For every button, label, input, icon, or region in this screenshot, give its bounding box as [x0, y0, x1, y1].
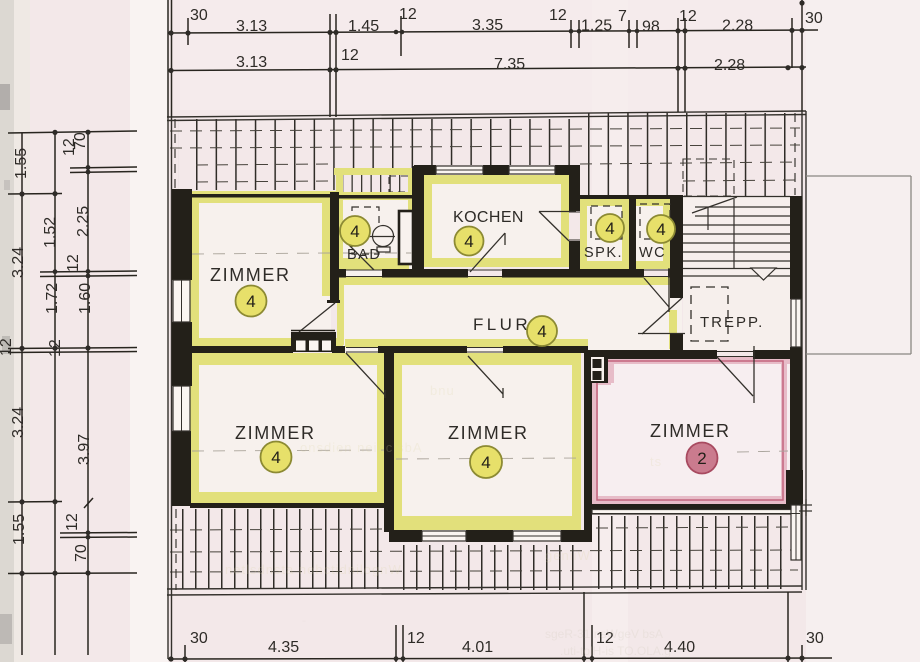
svg-text:BAD: BAD — [347, 247, 381, 263]
svg-text:30: 30 — [190, 7, 208, 24]
svg-text:4.35: 4.35 — [268, 639, 299, 656]
svg-text:1.52: 1.52 — [42, 217, 59, 248]
svg-text:TREPP.: TREPP. — [700, 314, 764, 331]
svg-text:2.28: 2.28 — [722, 18, 753, 35]
svg-text:1.72: 1.72 — [44, 283, 61, 314]
svg-text:12: 12 — [407, 630, 425, 647]
svg-text:ˍ: ˍ — [302, 609, 306, 623]
svg-text:1.60: 1.60 — [77, 283, 94, 314]
svg-text:70: 70 — [72, 132, 89, 150]
svg-text:2.28: 2.28 — [714, 57, 745, 74]
svg-text:4.01: 4.01 — [462, 639, 493, 656]
svg-text:ZIMMER: ZIMMER — [448, 423, 529, 443]
svg-text:7: 7 — [618, 8, 627, 25]
svg-text:3.13: 3.13 — [236, 54, 267, 71]
svg-text:4: 4 — [605, 219, 614, 238]
svg-text:4: 4 — [246, 292, 255, 311]
svg-text:bnu: bnu — [430, 383, 455, 398]
svg-text:ZIMMER: ZIMMER — [210, 265, 291, 285]
svg-text:4: 4 — [537, 322, 546, 341]
svg-text:3.24: 3.24 — [10, 407, 27, 438]
svg-text:4: 4 — [656, 220, 665, 239]
svg-text:SPK.: SPK. — [584, 245, 623, 261]
svg-text:3.35: 3.35 — [472, 17, 503, 34]
svg-text:3.24: 3.24 — [10, 247, 27, 278]
svg-text:ts: ts — [650, 454, 662, 469]
svg-text:.uti-tolH-is TO.OLA.g: .uti-tolH-is TO.OLA.g — [560, 644, 671, 658]
svg-text:12: 12 — [549, 7, 567, 24]
svg-text:FLUR: FLUR — [473, 315, 531, 334]
svg-text:2.25: 2.25 — [75, 206, 92, 237]
svg-text:70: 70 — [73, 544, 90, 562]
svg-text:30: 30 — [190, 630, 208, 647]
svg-text:12: 12 — [65, 254, 82, 272]
svg-text:1.55: 1.55 — [11, 514, 28, 545]
svg-text:1.45: 1.45 — [348, 18, 379, 35]
svg-text:3.13: 3.13 — [236, 18, 267, 35]
svg-text:4: 4 — [481, 453, 490, 472]
svg-text:4: 4 — [464, 232, 473, 251]
svg-text:7.35: 7.35 — [494, 56, 525, 73]
svg-text:1.55: 1.55 — [13, 148, 30, 179]
svg-text:ZIMMER: ZIMMER — [650, 421, 731, 441]
svg-text:12: 12 — [0, 338, 15, 356]
svg-text:4: 4 — [271, 448, 280, 467]
svg-text:geniiW: geniiW — [545, 548, 591, 563]
svg-text:sgeR-31 nsWgeV bsA: sgeR-31 nsWgeV bsA — [545, 627, 663, 641]
svg-text:12: 12 — [64, 513, 81, 531]
svg-text:30: 30 — [805, 10, 823, 27]
svg-text:3.97: 3.97 — [76, 434, 93, 465]
svg-text:1.25: 1.25 — [581, 18, 612, 35]
svg-text:12: 12 — [679, 8, 697, 25]
svg-text:WC: WC — [639, 245, 666, 261]
svg-text:12: 12 — [47, 339, 64, 357]
svg-text:onsdien neincisbA: onsdien neincisbA — [300, 440, 423, 455]
svg-text:30: 30 — [806, 630, 824, 647]
svg-text:4: 4 — [350, 222, 359, 241]
svg-text:98: 98 — [642, 19, 660, 36]
svg-text:netlsdnsta nehctidnilognW: netlsdnsta nehctidnilognW — [225, 562, 402, 577]
svg-text:KOCHEN: KOCHEN — [453, 209, 524, 226]
svg-text:2: 2 — [697, 449, 706, 468]
svg-text:12: 12 — [341, 47, 359, 64]
svg-text:12: 12 — [399, 6, 417, 23]
